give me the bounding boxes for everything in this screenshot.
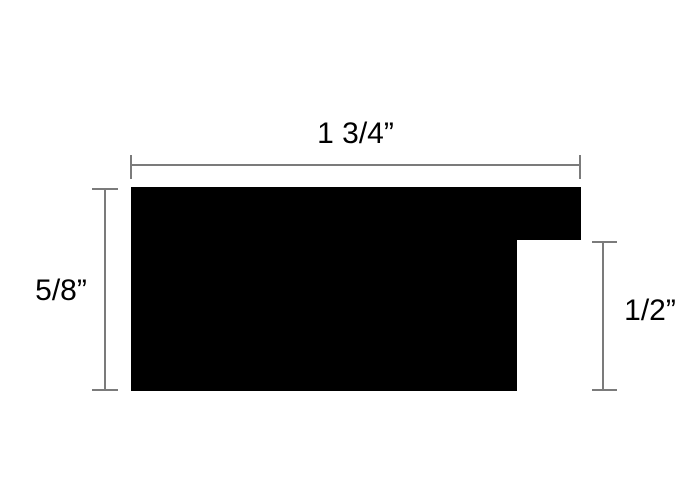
width-dimension-label: 1 3/4” [130, 119, 581, 149]
left-height-dimension-line-bar [104, 190, 106, 389]
moulding-profile-body [131, 187, 517, 391]
width-dimension-line [130, 155, 581, 179]
width-dimension-line-bar [132, 164, 579, 166]
left-height-dimension-label: 5/8” [26, 276, 96, 306]
right-height-dimension-line [592, 241, 617, 391]
profile-diagram-canvas: 1 3/4” 5/8” 1/2” [0, 0, 700, 500]
right-height-dimension-label: 1/2” [615, 296, 685, 326]
right-height-dimension-line-bar [602, 243, 604, 389]
moulding-profile-rabbet-lip [517, 187, 581, 240]
